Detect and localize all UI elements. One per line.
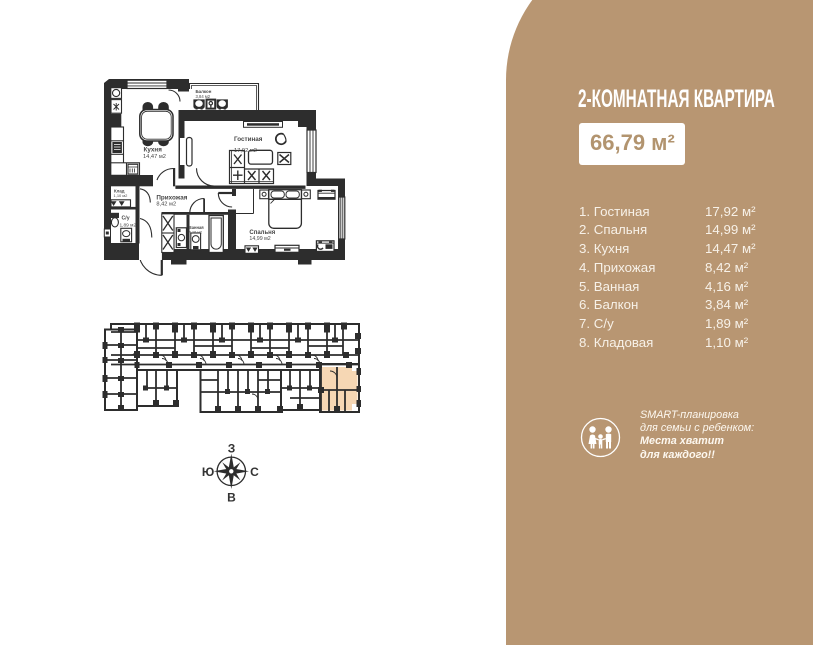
svg-text:Кухня: Кухня xyxy=(144,147,163,154)
svg-text:Гостиная: Гостиная xyxy=(234,136,263,143)
svg-text:Ю: Ю xyxy=(202,465,214,479)
svg-text:С/у: С/у xyxy=(122,215,130,221)
svg-text:1,89 м2: 1,89 м2 xyxy=(120,223,137,229)
svg-text:4,16 м2: 4,16 м2 xyxy=(189,230,202,234)
svg-text:17,92 м2: 17,92 м2 xyxy=(234,148,257,154)
svg-text:Прихожая: Прихожая xyxy=(156,194,187,201)
svg-text:1,10 м2: 1,10 м2 xyxy=(114,193,129,198)
svg-text:В: В xyxy=(227,491,236,505)
svg-text:С: С xyxy=(250,465,259,479)
svg-text:3,84 м2: 3,84 м2 xyxy=(196,94,211,99)
svg-text:З: З xyxy=(228,442,236,456)
svg-text:14,99 м2: 14,99 м2 xyxy=(249,236,270,242)
svg-text:8,42 м2: 8,42 м2 xyxy=(156,202,176,208)
svg-text:Ванная: Ванная xyxy=(189,225,204,230)
svg-text:14,47 м2: 14,47 м2 xyxy=(143,154,166,160)
